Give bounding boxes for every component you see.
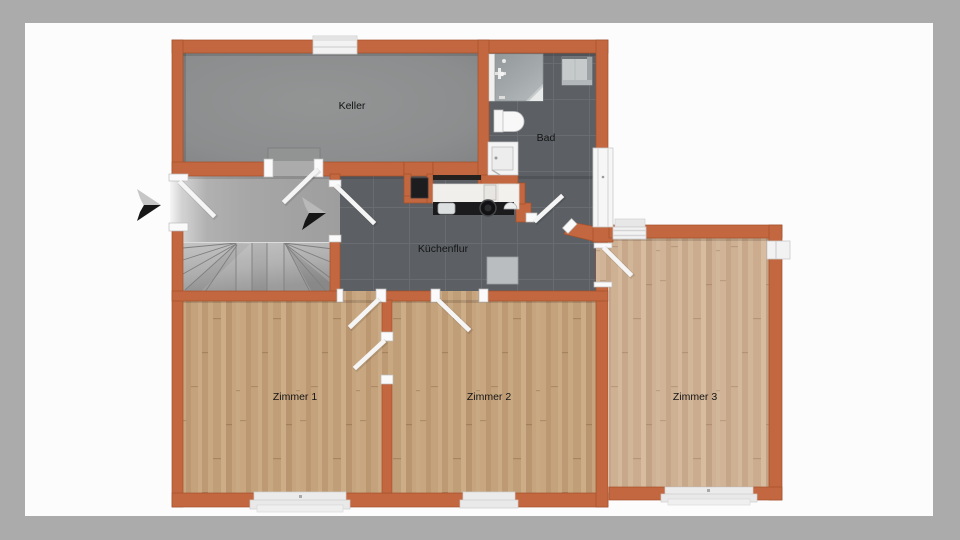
svg-text:Küchenflur: Küchenflur (418, 243, 469, 255)
svg-text:Zimmer 1: Zimmer 1 (273, 391, 317, 403)
svg-text:Bad: Bad (537, 132, 556, 144)
svg-text:Zimmer 3: Zimmer 3 (673, 391, 717, 403)
svg-text:Keller: Keller (339, 100, 366, 112)
svg-text:Zimmer 2: Zimmer 2 (467, 391, 511, 403)
